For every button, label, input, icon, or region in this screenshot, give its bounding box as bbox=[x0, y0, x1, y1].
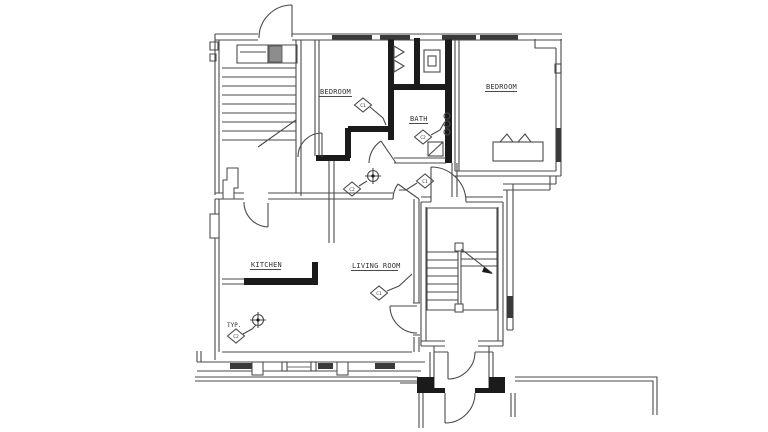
bedroom-left-walls bbox=[315, 40, 319, 156]
vestibule-outer-door bbox=[445, 393, 475, 423]
fixture-tag-label: C2 bbox=[233, 334, 239, 340]
fixture-tag-diamond: C1 bbox=[355, 98, 372, 112]
vestibule-inner-door bbox=[448, 352, 475, 379]
stair-landing-closet bbox=[269, 46, 282, 62]
floor-plan-drawing: C1 C2 C2 C1 C1 C2 BEDROOM BATH BEDROOM bbox=[0, 0, 768, 432]
room-label-bath: BATH bbox=[410, 115, 428, 123]
hall-door bbox=[393, 184, 419, 199]
radiator bbox=[493, 134, 543, 161]
fixture-tag-diamond: C1 bbox=[371, 286, 388, 300]
living-room-door bbox=[390, 306, 417, 333]
room-label-bedroom-right: BEDROOM bbox=[486, 83, 517, 91]
room-label-bedroom-left: BEDROOM bbox=[320, 88, 351, 96]
room-label-kitchen: KITCHEN bbox=[251, 261, 282, 269]
bedroom-left-door bbox=[298, 133, 322, 157]
light-fixture-icon bbox=[365, 168, 381, 184]
stair-direction-arrow bbox=[461, 249, 492, 273]
fixture-tag-diamond: C2 bbox=[228, 329, 245, 343]
interior-partitions bbox=[316, 38, 452, 163]
stair-cut-line bbox=[258, 120, 296, 147]
fixture-tag-diamond: C2 bbox=[344, 182, 361, 196]
ceiling-light-icons bbox=[250, 168, 381, 328]
entry-vestibule bbox=[400, 346, 515, 428]
kitchen-door bbox=[244, 202, 268, 227]
typical-note-label: TYP. bbox=[227, 322, 241, 329]
fixture-tag-label: C1 bbox=[376, 291, 382, 297]
light-fixture-icon bbox=[250, 312, 266, 328]
fixture-tag-label: C2 bbox=[349, 187, 355, 193]
stair-arrow-head bbox=[482, 267, 493, 274]
fixture-tag-label: C2 bbox=[420, 135, 426, 141]
bath-walls bbox=[394, 158, 457, 197]
floor-plan-canvas: C1 C2 C2 C1 C1 C2 BEDROOM BATH BEDROOM bbox=[0, 0, 768, 432]
upper-stair-block bbox=[210, 40, 301, 196]
entry-door-top bbox=[259, 5, 292, 38]
chimney-flue bbox=[424, 50, 440, 72]
fixture-tag-label: C1 bbox=[422, 179, 428, 185]
lower-stair-block bbox=[421, 197, 503, 346]
bath-door bbox=[369, 141, 396, 163]
closet-doors bbox=[394, 46, 404, 72]
fixture-tag-label: C1 bbox=[360, 103, 366, 109]
room-label-living-room: LIVING ROOM bbox=[352, 262, 401, 270]
stair-hall-door bbox=[431, 167, 466, 202]
